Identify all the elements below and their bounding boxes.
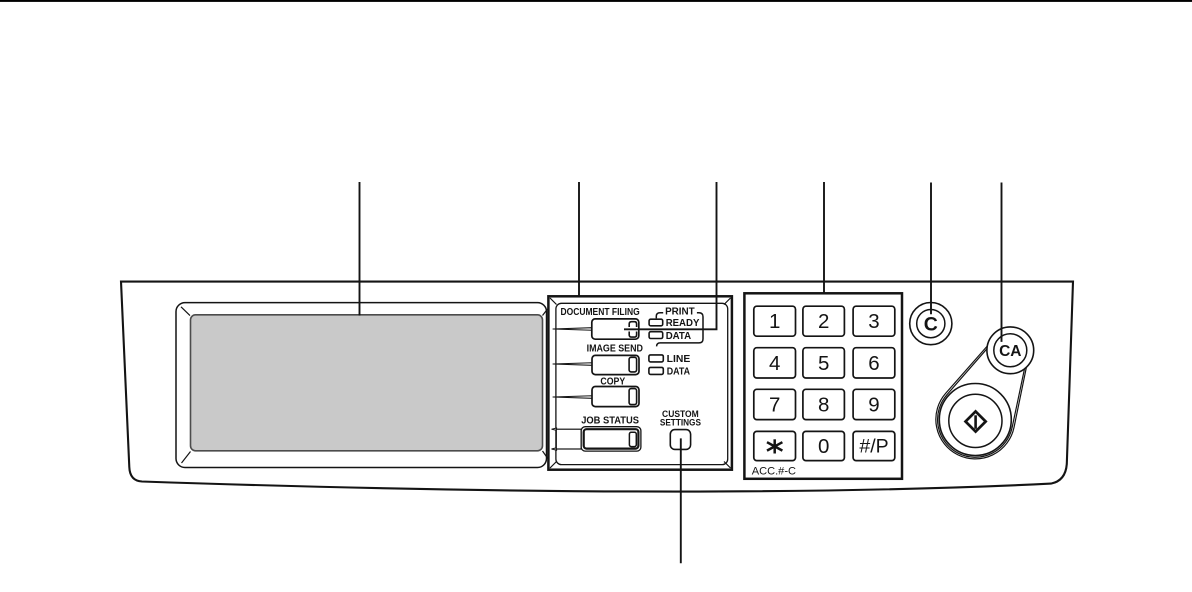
svg-text:LINE: LINE [667,354,691,365]
svg-text:9: 9 [868,394,879,417]
svg-text:2: 2 [818,310,829,333]
svg-text:8: 8 [818,394,829,417]
svg-text:#/P: #/P [859,436,888,458]
svg-text:ACC.#-C: ACC.#-C [752,465,797,477]
svg-text:DOCUMENT FILING: DOCUMENT FILING [561,307,640,318]
svg-text:DATA: DATA [666,331,692,342]
svg-text:IMAGE SEND: IMAGE SEND [587,343,643,354]
svg-text:1: 1 [769,310,780,333]
svg-text:6: 6 [868,352,879,375]
svg-text:4: 4 [769,352,780,375]
svg-text:READY: READY [666,318,700,329]
svg-text:3: 3 [868,310,879,333]
svg-text:JOB STATUS: JOB STATUS [581,415,639,426]
svg-text:SETTINGS: SETTINGS [660,417,701,427]
svg-text:5: 5 [818,352,829,375]
svg-text:PRINT: PRINT [665,306,695,317]
svg-text:C: C [924,314,938,336]
svg-text:7: 7 [769,394,780,417]
svg-text:CA: CA [999,343,1021,360]
svg-text:0: 0 [818,435,829,458]
svg-text:DATA: DATA [667,367,691,378]
